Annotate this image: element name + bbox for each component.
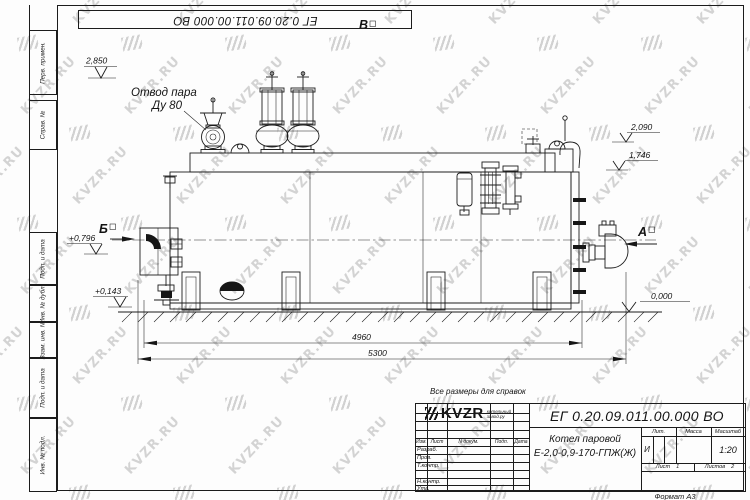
margin-box-perv-primen: Перв. примен. xyxy=(29,30,57,95)
tb-scale-value: 1:20 xyxy=(711,436,745,463)
tb-product-name: Котел паровой Е-2,0-0,9-170-ГПЖ(Ж) xyxy=(529,429,641,465)
format-label: Формат А3 xyxy=(600,492,750,500)
margin-box-inv-podl: Инв. № подл. xyxy=(29,418,57,492)
sheet-frame: ЕГ 0.20.09.011.00.000 ВО Перв. примен. С… xyxy=(0,0,750,500)
margin-box-podp-data-1: Подп. и дата xyxy=(29,232,57,285)
tb-row-prov: Пров. xyxy=(417,454,447,462)
tb-doc-number: ЕГ 0.20.09.011.00.000 ВО xyxy=(529,404,745,427)
tb-header-izm: Изм. xyxy=(416,438,427,446)
tb-lit-value: И xyxy=(641,436,653,463)
tb-header-data: Дата xyxy=(513,438,529,446)
margin-box-inv-dubl: Инв. № дубл. xyxy=(29,285,57,322)
margin-box-podp-data-2: Подп. и дата xyxy=(29,358,57,418)
tb-sheets-cell: Листов 2 xyxy=(694,463,745,471)
tb-header-list: Лист xyxy=(427,438,447,446)
tb-header-doc: N докум. xyxy=(447,438,490,446)
tb-mass-header: Масса xyxy=(676,427,711,436)
top-stamp-doc-number: ЕГ 0.20.09.011.00.000 ВО xyxy=(173,14,318,26)
margin-box-vzam-inv: Взам. инв. № xyxy=(29,322,57,358)
tb-row-tkontr: Т.контр. xyxy=(417,462,447,470)
margin-box-sprav-n: Справ. № xyxy=(29,100,57,150)
tb-row-utv: Утв. xyxy=(417,485,447,492)
tb-row-razrab: Разраб. xyxy=(417,446,447,454)
reference-note: Все размеры для справок xyxy=(430,387,526,396)
tb-lit-header: Лит. xyxy=(641,427,676,436)
title-block: Изм. Лист N докум. Подп. Дата Разраб. Пр… xyxy=(415,403,746,492)
tb-header-podp: Подп. xyxy=(490,438,513,446)
drawing-sheet: KVZR.RUKVZR.RUKVZR.RUKVZR.RUKVZR.RUKVZR.… xyxy=(0,0,750,500)
tb-scale-header: Масштаб xyxy=(711,427,745,436)
top-stamp: ЕГ 0.20.09.011.00.000 ВО xyxy=(78,10,412,29)
tb-sheet-cell: Лист 1 xyxy=(641,463,694,471)
